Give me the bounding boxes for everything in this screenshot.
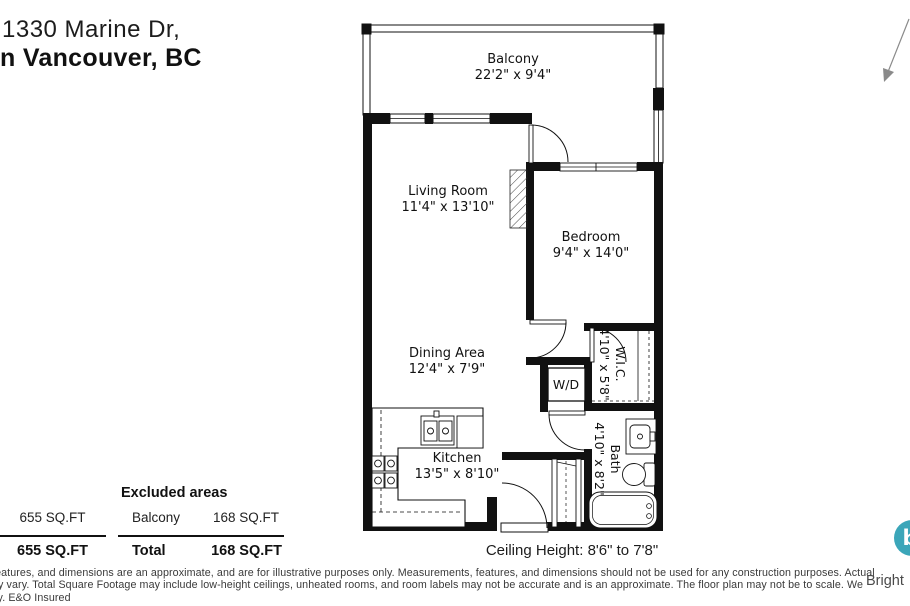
excluded-row: Balcony 168 SQ.FT [118, 510, 284, 525]
north-arrow-icon [883, 19, 909, 82]
living-room-name: Living Room [402, 184, 495, 200]
dishwasher [457, 416, 483, 448]
brand-logo-letter: b [902, 526, 910, 550]
brand-name: Bright [866, 573, 904, 589]
kitchen-label: Kitchen 13'5" x 8'10" [415, 451, 500, 483]
bath-door [549, 411, 585, 450]
address-line-1: 1330 Marine Dr, [2, 16, 180, 44]
living-room-dims: 11'4" x 13'10" [402, 200, 495, 216]
entry-closet [552, 459, 581, 527]
bedroom-dims: 9'4" x 14'0" [553, 246, 629, 262]
bath-dims: 4'10" x 8'2" [591, 422, 607, 495]
balcony-dims: 22'2" x 9'4" [475, 68, 551, 84]
dining-area-dims: 12'4" x 7'9" [409, 362, 485, 378]
balcony-side-window [654, 110, 663, 163]
wic-name: W.I.C. [612, 327, 628, 400]
washer-dryer-text: W/D [553, 377, 579, 393]
table-rule-right [118, 535, 284, 537]
bath-label: Bath 4'10" x 8'2" [591, 422, 623, 495]
dining-area-name: Dining Area [409, 346, 485, 362]
disclaimer-line-2: ay vary. Total Square Footage may includ… [0, 579, 875, 591]
entry-door [501, 483, 548, 532]
hatched-column [510, 170, 527, 228]
floor-plan-page: { "header": { "address_line1": "1330 Mar… [0, 0, 910, 606]
wic-dims: 4'10" x 5'8" [596, 327, 612, 400]
main-area-total: 655 SQ.FT [0, 543, 105, 559]
balcony-door [529, 125, 568, 163]
bedroom-label: Bedroom 9'4" x 14'0" [553, 230, 629, 262]
bathtub-icon [589, 492, 657, 528]
kitchen-name: Kitchen [415, 451, 500, 467]
address-line-2: n Vancouver, BC [0, 44, 202, 73]
bedroom-sliding-window [560, 163, 637, 171]
kitchen-dims: 13'5" x 8'10" [415, 467, 500, 483]
bath-name: Bath [607, 422, 623, 495]
wic-label: W.I.C. 4'10" x 5'8" [596, 327, 628, 400]
total-label: Total [132, 543, 166, 559]
excluded-row-value: 168 SQ.FT [213, 510, 279, 525]
bedroom-name: Bedroom [553, 230, 629, 246]
bath-sink-icon [626, 419, 656, 454]
excluded-row-label: Balcony [132, 510, 180, 525]
living-room-windows [390, 114, 490, 123]
balcony-name: Balcony [475, 52, 551, 68]
total-value: 168 SQ.FT [211, 543, 282, 559]
disclaimer-line-3: ity. E&O Insured [0, 592, 875, 604]
disclaimer-line-1: features, and dimensions are an approxim… [0, 567, 875, 579]
living-room-label: Living Room 11'4" x 13'10" [402, 184, 495, 216]
dining-area-label: Dining Area 12'4" x 7'9" [409, 346, 485, 378]
excluded-areas-header: Excluded areas [118, 485, 291, 501]
toilet-icon [623, 463, 656, 486]
washer-dryer-label: W/D [553, 377, 579, 393]
kitchen-sink [421, 411, 454, 445]
balcony-label: Balcony 22'2" x 9'4" [475, 52, 551, 84]
disclaimer: features, and dimensions are an approxim… [0, 567, 875, 604]
main-area-value: 655 SQ.FT [0, 510, 105, 525]
table-rule-left [0, 535, 106, 537]
ceiling-height-note: Ceiling Height: 8'6" to 7'8" [420, 542, 724, 559]
bedroom-door [530, 320, 566, 358]
balcony-column [653, 88, 664, 110]
total-row: Total 168 SQ.FT [118, 543, 284, 559]
